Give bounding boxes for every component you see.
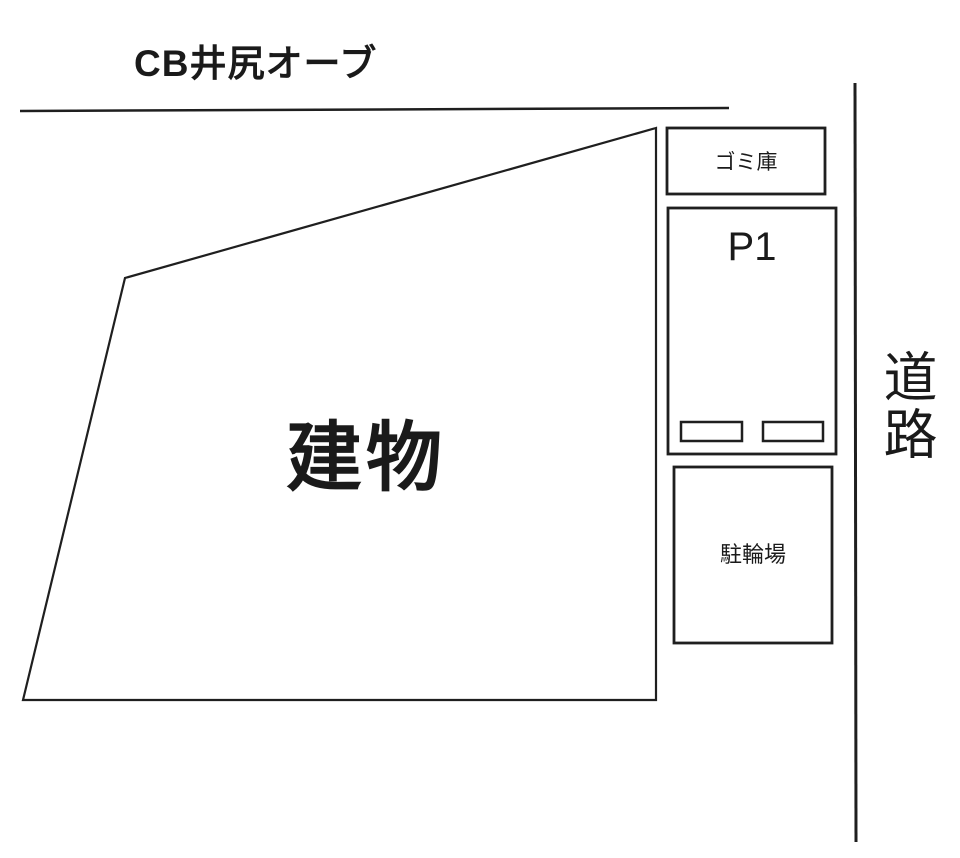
parking-area-label: P1: [668, 227, 836, 267]
road-label: 道路: [876, 349, 934, 463]
street-boundary-line: [20, 108, 729, 111]
building-label: 建物: [240, 396, 492, 506]
bicycle-parking-label: 駐輪場: [674, 537, 832, 569]
garbage-storage-label: ゴミ庫: [667, 128, 825, 194]
parking-stall-2: [763, 422, 823, 441]
page-title: CB井尻オーブ: [134, 33, 377, 87]
parking-stall-1: [681, 422, 742, 441]
site-plan-diagram: CB井尻オーブ 建物 ゴミ庫 P1 駐輪場 道路: [0, 0, 960, 858]
road-line: [855, 83, 856, 842]
